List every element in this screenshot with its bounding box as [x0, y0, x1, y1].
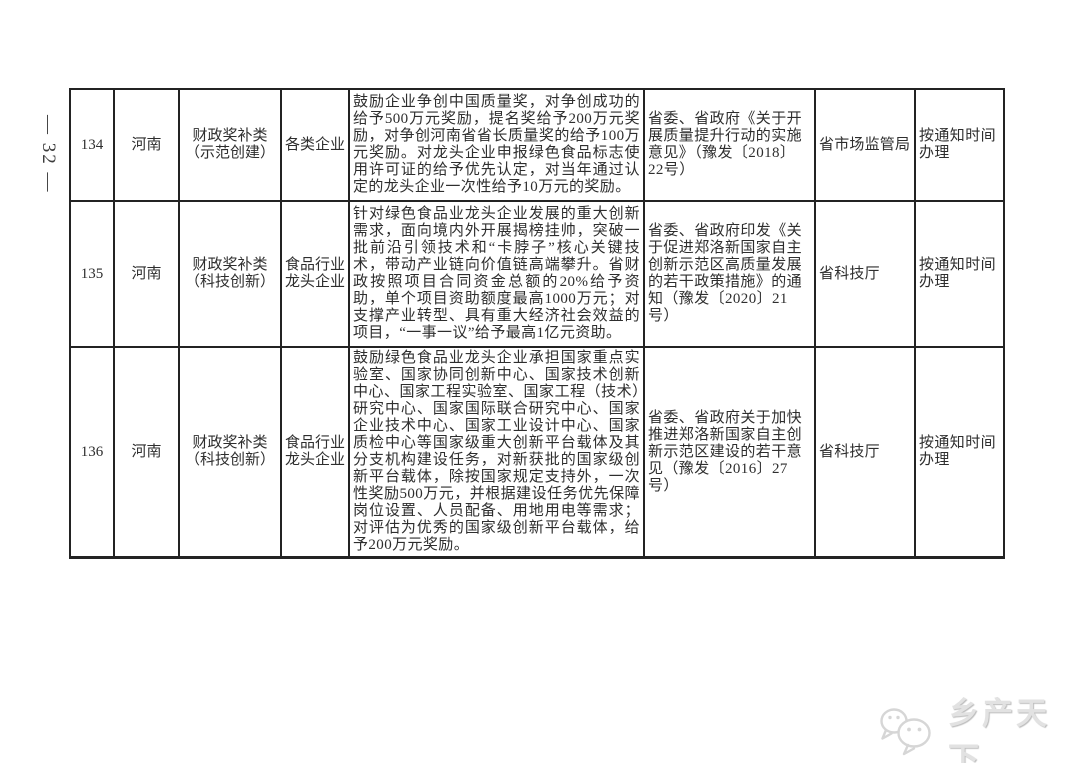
page-number: — 32 — [37, 115, 59, 191]
cell-target: 食品行业 龙头企业 [281, 201, 349, 347]
cell-time: 按通知时间办理 [915, 89, 1004, 201]
watermark-text: 乡产天下 [948, 688, 1080, 763]
cell-basis: 省委、省政府关于加快推进郑洛新国家自主创新示范区建设的若干意见（豫发〔2016〕… [644, 347, 815, 558]
cell-index: 136 [70, 347, 114, 558]
cell-province: 河南 [114, 201, 179, 347]
cell-target: 食品行业 龙头企业 [281, 347, 349, 558]
cell-department: 省科技厅 [815, 201, 915, 347]
cell-index: 135 [70, 201, 114, 347]
cell-basis: 省委、省政府《关于开展质量提升行动的实施意见》（豫发〔2018〕22号） [644, 89, 815, 201]
cell-department: 省市场监管局 [815, 89, 915, 201]
cell-category: 财政奖补类 （科技创新） [179, 347, 281, 558]
cell-category: 财政奖补类 （科技创新） [179, 201, 281, 347]
chat-bubbles-icon [876, 704, 938, 763]
cell-province: 河南 [114, 347, 179, 558]
policy-table: 134 河南 财政奖补类 （示范创建） 各类企业 鼓励企业争创中国质量奖，对争创… [69, 88, 1005, 559]
cell-target: 各类企业 [281, 89, 349, 201]
table-row: 136 河南 财政奖补类 （科技创新） 食品行业 龙头企业 鼓励绿色食品业龙头企… [70, 347, 1004, 558]
cell-department: 省科技厅 [815, 347, 915, 558]
cell-category: 财政奖补类 （示范创建） [179, 89, 281, 201]
scanned-document-page: — 32 — 134 河南 财政奖补类 （示范创建） 各类企业 鼓励企业争创中国… [0, 0, 1080, 763]
cell-content: 针对绿色食品业龙头企业发展的重大创新需求，面向境内外开展揭榜挂帅，突破一批前沿引… [349, 201, 644, 347]
cell-province: 河南 [114, 89, 179, 201]
cell-basis: 省委、省政府印发《关于促进郑洛新国家自主创新示范区高质量发展的若干政策措施》的通… [644, 201, 815, 347]
table-row: 135 河南 财政奖补类 （科技创新） 食品行业 龙头企业 针对绿色食品业龙头企… [70, 201, 1004, 347]
watermark-logo: 乡产天下 [876, 688, 1080, 763]
cell-index: 134 [70, 89, 114, 201]
table-row: 134 河南 财政奖补类 （示范创建） 各类企业 鼓励企业争创中国质量奖，对争创… [70, 89, 1004, 201]
cell-time: 按通知时间办理 [915, 347, 1004, 558]
cell-content: 鼓励绿色食品业龙头企业承担国家重点实验室、国家协同创新中心、国家技术创新中心、国… [349, 347, 644, 558]
cell-time: 按通知时间办理 [915, 201, 1004, 347]
cell-content: 鼓励企业争创中国质量奖，对争创成功的给予500万元奖励，提名奖给予200万元奖励… [349, 89, 644, 201]
